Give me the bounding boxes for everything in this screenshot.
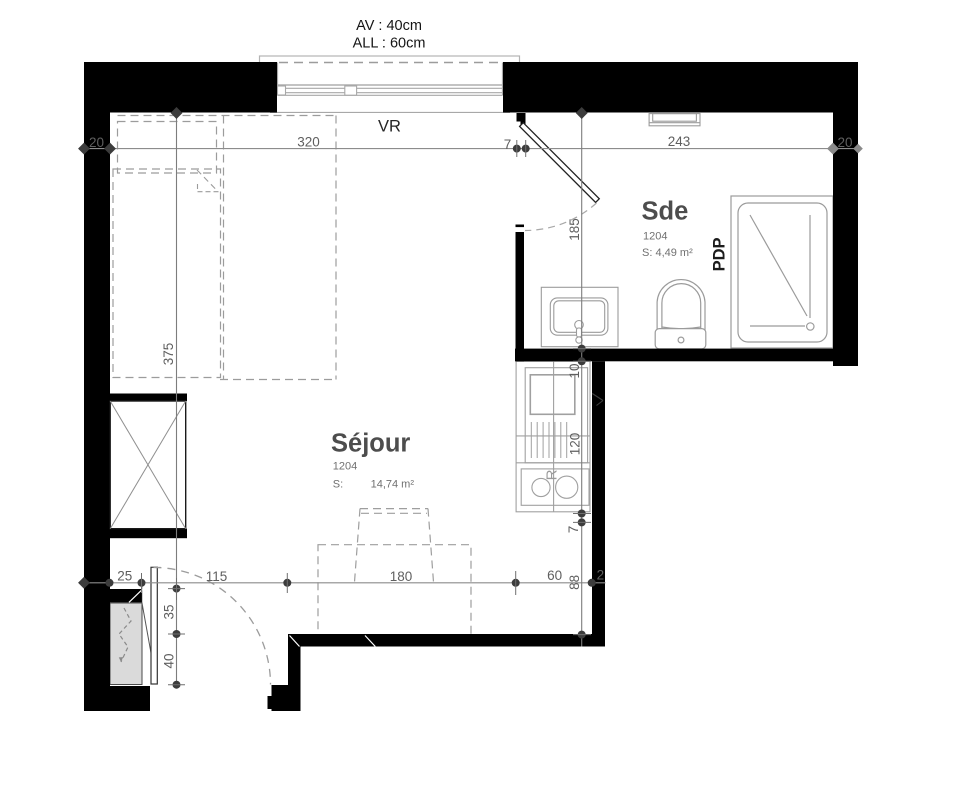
svg-text:375: 375 <box>161 343 176 366</box>
svg-text:2: 2 <box>597 568 605 583</box>
svg-text:R: R <box>544 469 561 480</box>
svg-text:14,74 m²: 14,74 m² <box>371 479 415 491</box>
svg-text:243: 243 <box>668 134 691 149</box>
svg-text:Séjour: Séjour <box>331 430 410 458</box>
svg-text:10: 10 <box>567 363 582 378</box>
svg-text:AV : 40cm: AV : 40cm <box>356 18 422 34</box>
svg-text:VR: VR <box>378 118 401 136</box>
svg-text:180: 180 <box>390 569 413 584</box>
svg-text:60: 60 <box>547 568 562 583</box>
svg-text:25: 25 <box>117 569 132 584</box>
svg-text:1204: 1204 <box>333 461 357 473</box>
svg-text:20: 20 <box>89 135 104 150</box>
svg-text:7: 7 <box>504 137 512 152</box>
svg-text:20: 20 <box>837 135 852 150</box>
svg-text:S: 4,49 m²: S: 4,49 m² <box>642 247 693 259</box>
svg-text:120: 120 <box>568 433 583 456</box>
svg-text:7: 7 <box>566 526 581 534</box>
svg-text:Sde: Sde <box>642 198 689 226</box>
svg-text:35: 35 <box>162 604 177 619</box>
svg-text:1204: 1204 <box>643 230 667 242</box>
svg-text:185: 185 <box>567 218 582 241</box>
svg-text:ALL : 60cm: ALL : 60cm <box>353 36 426 52</box>
svg-text:115: 115 <box>206 569 228 584</box>
svg-text:88: 88 <box>567 575 582 590</box>
svg-text:PDP: PDP <box>710 237 728 271</box>
svg-text:S:: S: <box>333 479 343 491</box>
svg-text:320: 320 <box>297 135 320 150</box>
svg-text:40: 40 <box>162 653 177 668</box>
